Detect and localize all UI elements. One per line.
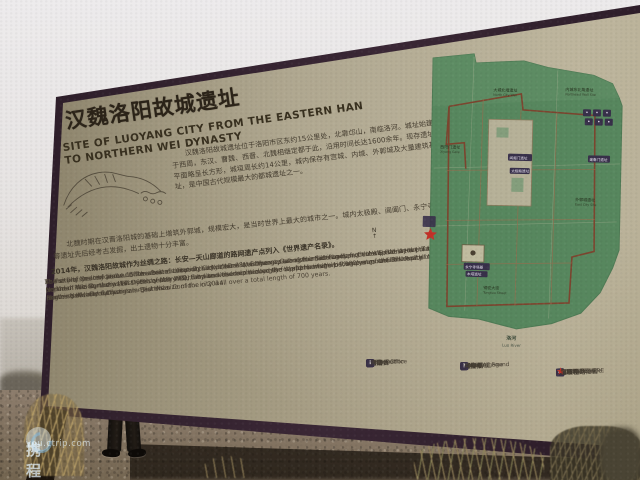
map-label: 外郭城遗址: [575, 196, 595, 202]
site-map: 洛河 Luo River 大城北墙遗址North City Wall内城东北角遗…: [420, 48, 630, 364]
grass-tuft-small: [204, 456, 250, 478]
map-label-en: Northeast Wall Site: [565, 92, 596, 97]
grass-clump-center: [414, 438, 544, 480]
north-arrow: N ↑: [371, 228, 377, 240]
legend-label-en: YOU ARE HERE: [561, 368, 604, 375]
legend-label-en: Lost and Found: [465, 362, 509, 369]
map-site-tag-label: 建春门遗址: [589, 157, 607, 162]
map-label-en: North City Wall: [493, 93, 517, 98]
map-palace-city: [487, 119, 533, 206]
photo-of-sign-board: 汉魏洛阳故城遗址 SITE OF LUOYANG CITY FROM THE E…: [0, 0, 640, 480]
map-label-en: Xiyang Gate: [440, 150, 460, 154]
map-site-tag-label: 永宁寺塔基: [465, 264, 483, 269]
legend-label-en: Information: [371, 359, 405, 366]
map-label: 内城东北角遗址: [565, 86, 593, 93]
watermark-domain: you.ctrip.com: [26, 439, 91, 449]
dark-bush: [600, 428, 640, 480]
map-site-tag-label: 木塔遗址: [467, 271, 482, 276]
inset-sketch-map: [53, 150, 177, 224]
map-label: 西阳门遗址: [440, 143, 460, 149]
map-site-tag-label: 太极殿遗址: [511, 168, 529, 173]
map-label-en: East City Site: [575, 203, 596, 207]
map-river-label-cn: 洛河: [506, 335, 516, 342]
sign-board-content: 汉魏洛阳故城遗址 SITE OF LUOYANG CITY FROM THE E…: [0, 0, 640, 480]
map-label: 大城北墙遗址: [493, 86, 517, 93]
legend-column-3: P停车场Car ParkB电瓶车站Electric BusR垃圾箱Rubbish…: [556, 363, 640, 366]
map-label-en: Tongtuo Street: [482, 291, 507, 296]
map-site-tag-label: 阊阖门遗址: [509, 155, 527, 160]
map-label: 铜驼大街: [483, 284, 499, 290]
map-river-label-en: Luo River: [502, 343, 521, 348]
